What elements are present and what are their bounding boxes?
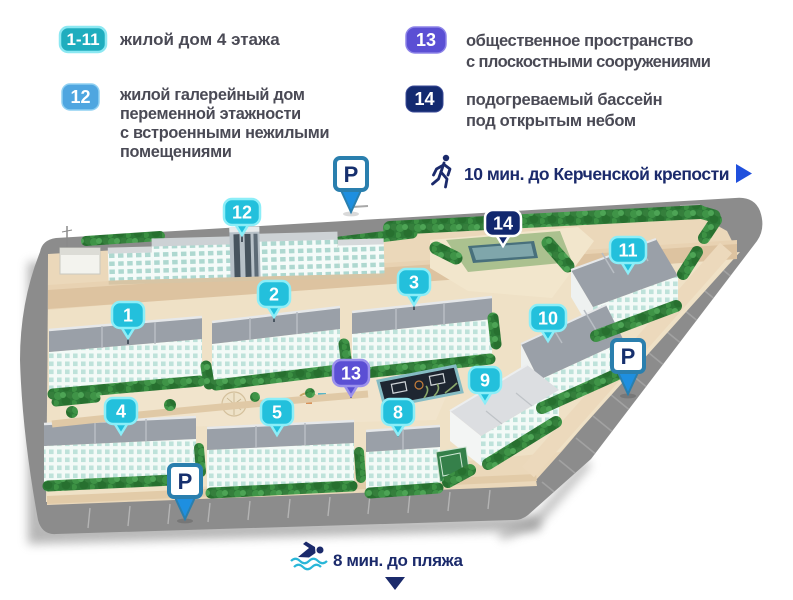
svg-text:переменной этажности: переменной этажности	[120, 105, 301, 123]
svg-text:14: 14	[493, 214, 513, 234]
svg-text:P: P	[621, 344, 636, 369]
svg-text:жилой дом 4 этажа: жилой дом 4 этажа	[119, 30, 280, 49]
svg-text:P: P	[344, 162, 359, 187]
svg-text:с плоскостными сооружениями: с плоскостными сооружениями	[466, 53, 710, 71]
svg-text:14: 14	[414, 89, 434, 109]
svg-text:8: 8	[393, 403, 403, 423]
svg-text:1: 1	[123, 306, 133, 326]
svg-text:12: 12	[232, 203, 252, 223]
svg-text:10: 10	[538, 309, 558, 329]
svg-text:3: 3	[409, 273, 419, 293]
svg-text:11: 11	[618, 241, 637, 261]
svg-text:под открытым небом: под открытым небом	[466, 112, 636, 130]
svg-text:с встроенными нежилыми: с встроенными нежилыми	[120, 124, 329, 142]
svg-text:12: 12	[70, 87, 90, 107]
svg-text:9: 9	[480, 371, 490, 391]
svg-text:4: 4	[116, 402, 126, 422]
svg-text:2: 2	[269, 285, 279, 305]
svg-text:13: 13	[416, 30, 436, 50]
svg-text:13: 13	[341, 364, 361, 384]
svg-text:5: 5	[272, 403, 282, 423]
svg-text:подогреваемый бассейн: подогреваемый бассейн	[466, 91, 662, 109]
svg-text:помещениями: помещениями	[120, 143, 232, 161]
svg-text:10 мин. до Керченской крепости: 10 мин. до Керченской крепости	[464, 164, 729, 184]
svg-text:8 мин. до пляжа: 8 мин. до пляжа	[333, 551, 463, 570]
svg-text:P: P	[178, 469, 193, 494]
svg-text:жилой галерейный дом: жилой галерейный дом	[119, 86, 305, 104]
svg-text:общественное пространство: общественное пространство	[466, 32, 693, 50]
svg-text:1-11: 1-11	[66, 30, 99, 49]
